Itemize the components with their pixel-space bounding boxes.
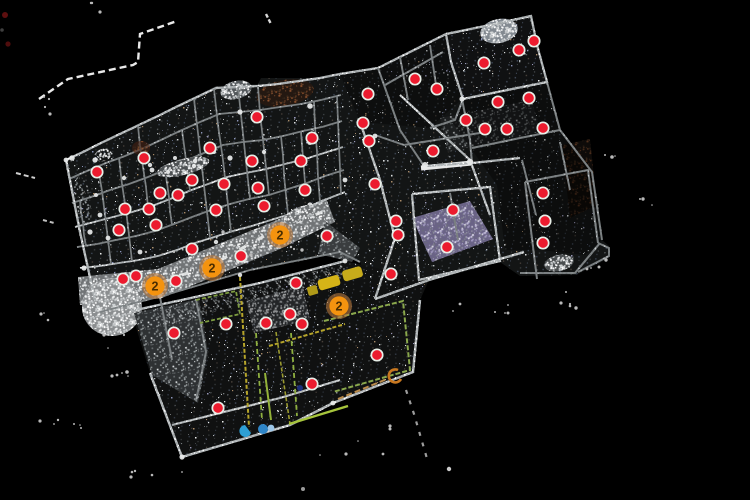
svg-text:2: 2 bbox=[277, 229, 284, 243]
svg-text:2: 2 bbox=[152, 280, 159, 294]
svg-text:2: 2 bbox=[336, 300, 343, 314]
svg-text:2: 2 bbox=[209, 262, 216, 276]
